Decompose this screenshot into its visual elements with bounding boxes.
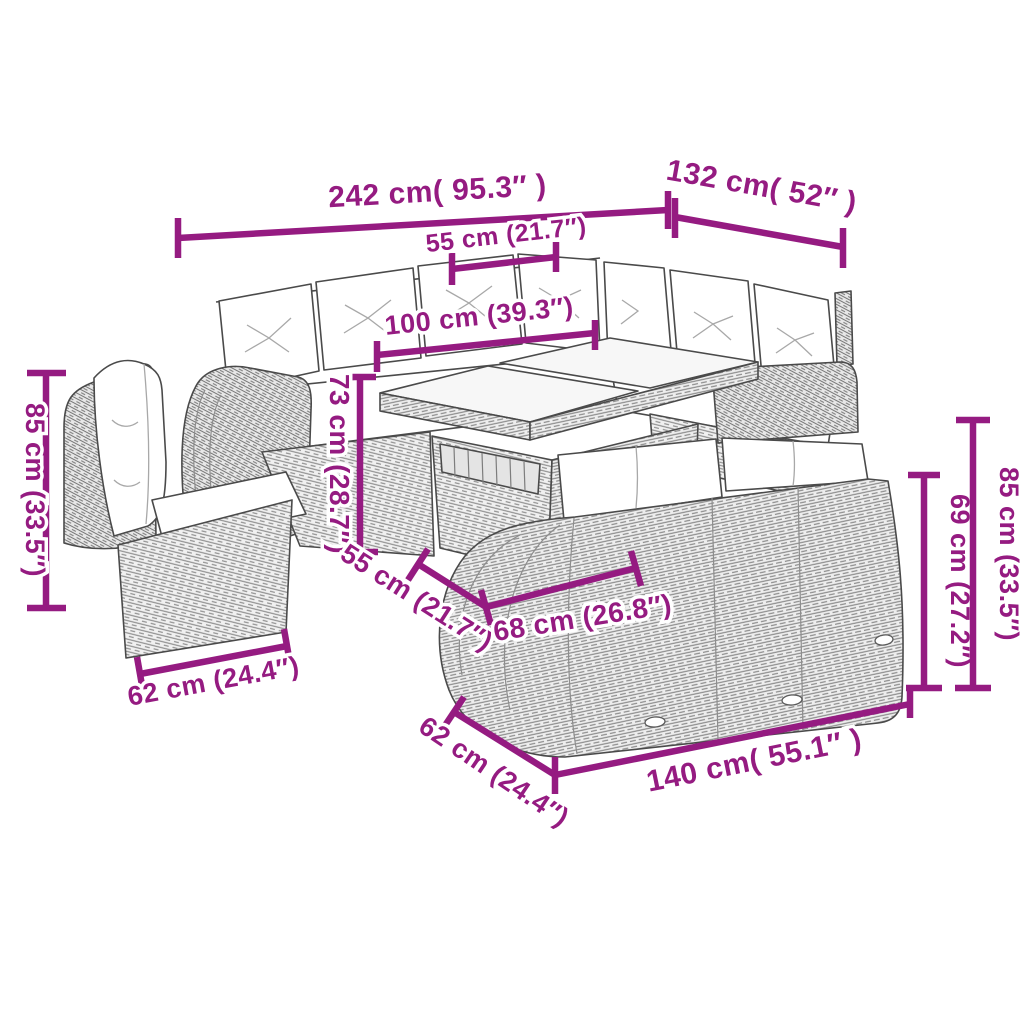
corner-sofa-right-arm-post [835, 291, 853, 366]
dim-85-left-label: 85 cm (33.5″) [20, 403, 50, 577]
furniture-diagram: 242 cm( 95.3″ ) 132 cm( 52″ ) 55 cm (21.… [0, 0, 1024, 1024]
dim-132-label: 132 cm( 52″ ) [664, 154, 859, 220]
dim-85-right-label: 85 cm (33.5″) [994, 467, 1024, 641]
dim-69 [906, 475, 942, 688]
dim-73-label: 73 cm (28.7″) [324, 374, 355, 554]
product-dimension-diagram: 242 cm( 95.3″ ) 132 cm( 52″ ) 55 cm (21.… [0, 0, 1024, 1024]
dim-242-label: 242 cm( 95.3″ ) [327, 169, 547, 215]
